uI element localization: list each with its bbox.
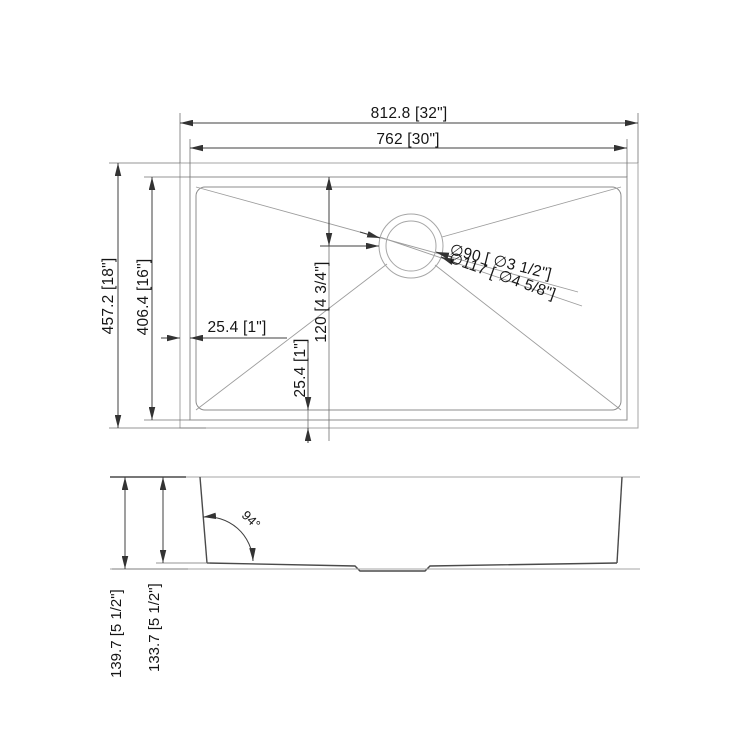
dim-wall-angle: 94° xyxy=(239,508,264,532)
drawing-canvas: 812.8 [32"] 762 [30"] 457.2 [18"] 406.4 … xyxy=(0,0,750,750)
outer-rim-rect xyxy=(180,163,638,428)
sink-dimension-drawing: 812.8 [32"] 762 [30"] 457.2 [18"] 406.4 … xyxy=(0,0,750,750)
top-view-extension-lines xyxy=(109,113,638,441)
dim-rim-bottom: 25.4 [1"] xyxy=(292,338,309,397)
top-view: 812.8 [32"] 762 [30"] 457.2 [18"] 406.4 … xyxy=(100,105,638,443)
dim-overall-height: 139.7 [5 1/2"] xyxy=(108,589,125,678)
dim-drain-offset: 120 [4 3/4"] xyxy=(313,261,330,342)
dim-rim-left: 25.4 [1"] xyxy=(207,319,266,336)
side-view: 94° 139.7 [5 1/2"] 133.7 [5 1/2"] xyxy=(108,477,640,678)
bowl-floor-rect xyxy=(196,187,621,410)
side-view-extension-lines xyxy=(112,563,210,569)
dim-overall-width: 812.8 [32"] xyxy=(371,105,448,122)
dim-inner-depth: 406.4 [16"] xyxy=(135,259,152,336)
corner-diagonals xyxy=(196,187,621,410)
dim-overall-depth: 457.2 [18"] xyxy=(100,258,117,335)
bowl-floor-profile xyxy=(207,563,617,571)
sink-profile xyxy=(200,477,622,571)
bowl-rect xyxy=(190,177,627,420)
dim-inner-height: 133.7 [5 1/2"] xyxy=(146,583,163,672)
side-view-dimension-lines xyxy=(125,477,163,569)
dim-inner-width: 762 [30"] xyxy=(376,131,439,148)
